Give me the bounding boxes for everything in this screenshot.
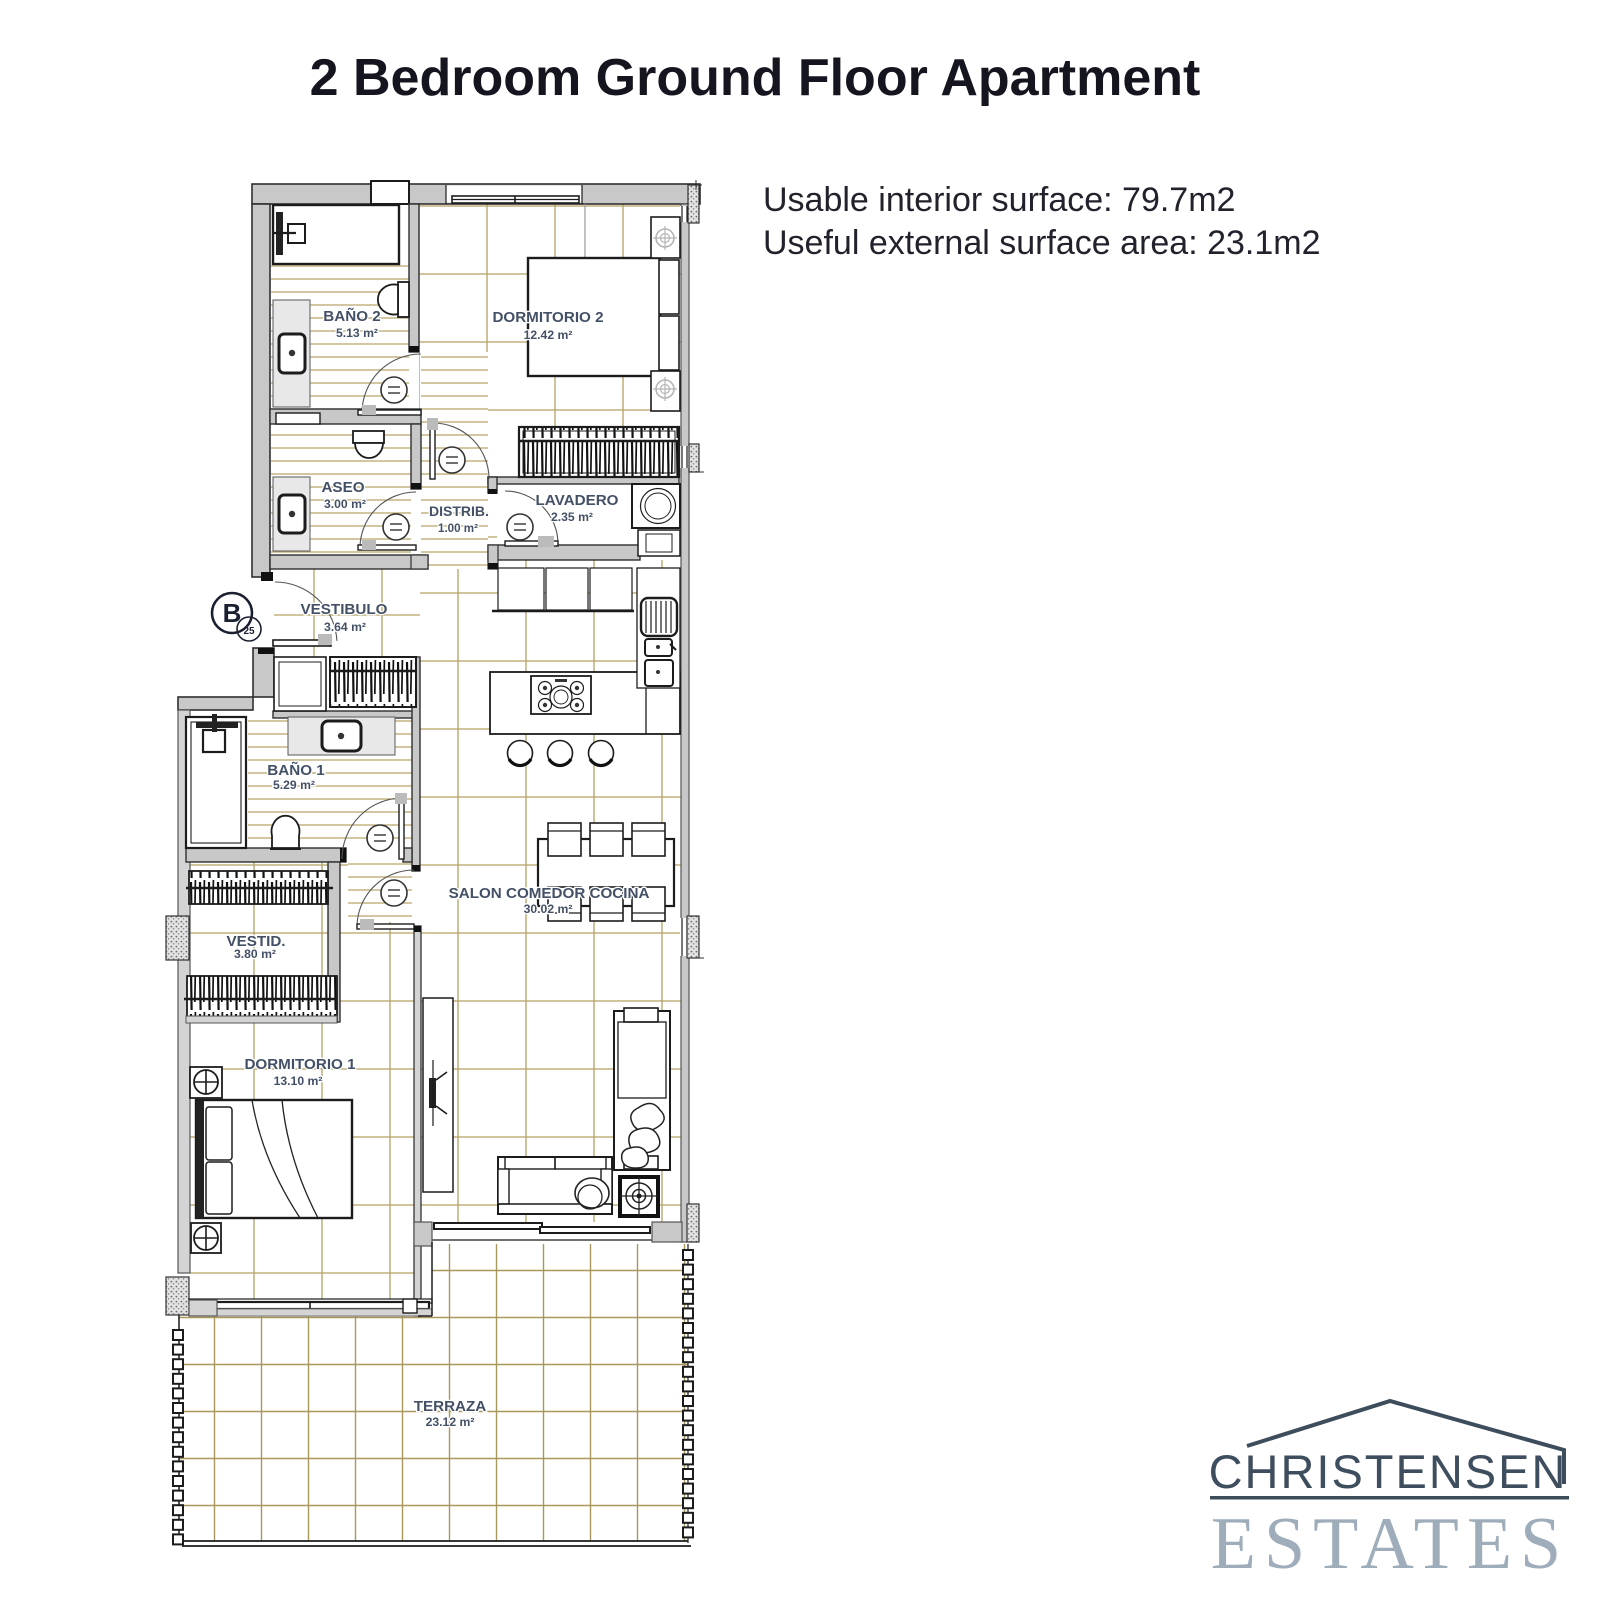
svg-text:25: 25 [243, 626, 255, 637]
svg-text:3.80 m²: 3.80 m² [234, 947, 276, 961]
svg-text:Usable interior surface: 79.7m: Usable interior surface: 79.7m2 [763, 181, 1235, 219]
svg-text:TERRAZA: TERRAZA [414, 1398, 487, 1415]
svg-text:BAÑO 2: BAÑO 2 [323, 307, 380, 325]
svg-text:SALON COMEDOR COCINA: SALON COMEDOR COCINA [449, 885, 650, 902]
svg-text:VESTIBULO: VESTIBULO [301, 601, 388, 618]
svg-text:3.64 m²: 3.64 m² [324, 620, 366, 634]
svg-text:DORMITORIO 1: DORMITORIO 1 [244, 1056, 356, 1073]
svg-text:DORMITORIO 2: DORMITORIO 2 [492, 309, 603, 326]
svg-text:12.42 m²: 12.42 m² [524, 328, 573, 342]
svg-text:ASEO: ASEO [321, 479, 364, 496]
svg-text:13.10 m²: 13.10 m² [274, 1074, 323, 1088]
svg-text:DISTRIB.: DISTRIB. [429, 503, 489, 519]
svg-text:CHRISTENSEN: CHRISTENSEN [1209, 1445, 1568, 1498]
svg-text:2 Bedroom Ground Floor Apartme: 2 Bedroom Ground Floor Apartment [310, 49, 1201, 107]
svg-text:LAVADERO: LAVADERO [536, 492, 619, 509]
svg-text:2.35 m²: 2.35 m² [551, 510, 593, 524]
svg-text:5.29 m²: 5.29 m² [273, 778, 315, 792]
svg-text:3.00 m²: 3.00 m² [324, 497, 366, 511]
svg-text:BAÑO 1: BAÑO 1 [267, 761, 325, 779]
svg-text:Useful external surface area:: Useful external surface area: 23.1m2 [763, 224, 1321, 262]
svg-text:ESTATES: ESTATES [1211, 1503, 1569, 1585]
svg-text:1.00 m²: 1.00 m² [438, 522, 478, 535]
svg-text:23.12 m²: 23.12 m² [426, 1415, 475, 1429]
svg-text:5.13 m²: 5.13 m² [336, 326, 378, 340]
svg-text:30.02 m²: 30.02 m² [524, 902, 573, 916]
